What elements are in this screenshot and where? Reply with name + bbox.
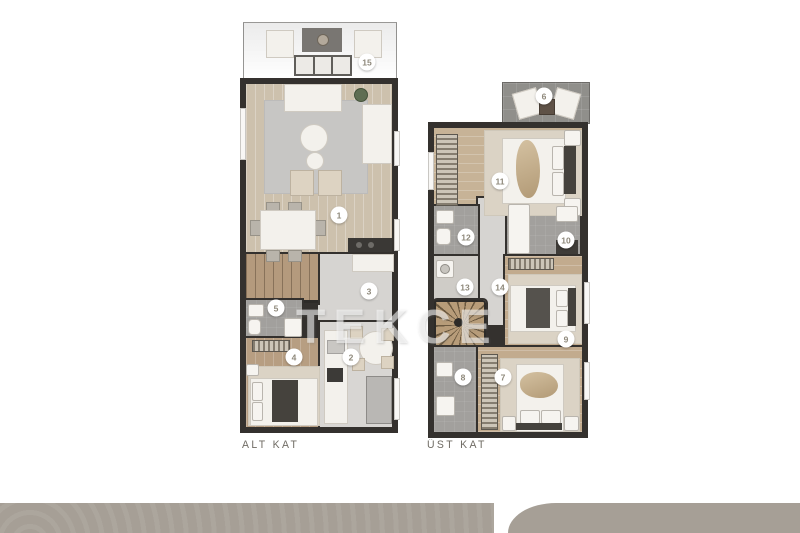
open-wardrobe <box>436 134 458 206</box>
room-marker-13: 13 <box>457 279 474 296</box>
dining-table <box>260 210 316 250</box>
bed-throw <box>272 380 298 422</box>
pillow <box>552 172 564 196</box>
ust-kat-unit <box>428 122 588 438</box>
nightstand <box>564 416 579 431</box>
window <box>428 152 434 190</box>
label-alt-kat: ALT KAT <box>242 439 299 451</box>
pillow <box>252 402 263 421</box>
wardrobe <box>508 258 554 270</box>
dining-chair <box>288 250 302 262</box>
room-marker-14: 14 <box>492 279 509 296</box>
fur-throw <box>516 140 540 198</box>
window <box>240 108 246 160</box>
room-marker-6: 6 <box>536 88 553 105</box>
floorplan-ust-kat <box>428 82 588 438</box>
nightstand <box>564 130 581 146</box>
bathroom-8 <box>434 347 478 432</box>
dining-chair <box>266 250 280 262</box>
window <box>394 131 400 166</box>
chaise-lounge <box>362 104 392 164</box>
terrace-table-decor <box>317 34 329 46</box>
room-marker-8: 8 <box>455 369 472 386</box>
window <box>394 219 400 251</box>
bed-headboard <box>516 423 562 430</box>
toilet <box>248 319 261 335</box>
counter-light <box>352 254 394 272</box>
kitchen-chair <box>381 356 394 369</box>
armchair-1 <box>290 170 314 196</box>
open-wardrobe <box>481 354 498 430</box>
nightstand <box>502 416 516 431</box>
sink <box>436 362 453 377</box>
window <box>584 282 590 324</box>
tekce-watermark: TEKCE <box>296 300 499 355</box>
living-sofa <box>284 84 342 112</box>
bed-headboard <box>564 146 576 194</box>
bed-blanket <box>526 288 550 328</box>
floorplan-canvas: TEKCE 123451567891011121314 ALT KAT ÜST … <box>0 0 800 533</box>
sink <box>248 304 264 317</box>
coffee-table <box>300 124 328 152</box>
pillow <box>556 310 568 327</box>
cooktop-burner <box>368 242 374 248</box>
room-marker-12: 12 <box>458 229 475 246</box>
staircase <box>246 254 318 303</box>
room-marker-9: 9 <box>558 331 575 348</box>
room-marker-11: 11 <box>492 173 509 190</box>
plant <box>354 88 368 102</box>
room-marker-2: 2 <box>343 349 360 366</box>
pillow <box>520 410 540 424</box>
sink <box>436 210 454 224</box>
bottom-bar-right <box>508 503 800 533</box>
alt-kat-unit <box>240 78 398 433</box>
terrace-armchair-left <box>266 30 294 58</box>
window <box>394 378 400 420</box>
room-marker-15: 15 <box>359 54 376 71</box>
room-marker-5: 5 <box>268 300 285 317</box>
room-marker-10: 10 <box>558 232 575 249</box>
armchair-2 <box>318 170 342 196</box>
toilet <box>436 228 451 245</box>
nightstand <box>246 364 259 376</box>
label-ust-kat: ÜST KAT <box>427 439 487 451</box>
sofa-cushion <box>333 57 350 74</box>
room-marker-1: 1 <box>331 207 348 224</box>
bed-headboard <box>568 288 576 326</box>
pillow <box>552 146 564 170</box>
room-marker-3: 3 <box>361 283 378 300</box>
kitchen-stove <box>327 368 343 382</box>
washer-drum <box>440 264 450 274</box>
fridge <box>366 376 392 424</box>
bathtub <box>508 204 530 254</box>
fur-throw <box>520 372 558 398</box>
terrace <box>243 22 397 80</box>
shower <box>436 396 455 416</box>
wardrobe <box>252 340 290 352</box>
room-marker-4: 4 <box>286 349 303 366</box>
side-table <box>306 152 324 170</box>
sofa-cushion <box>296 57 313 74</box>
floorplan-alt-kat <box>240 22 398 433</box>
cooktop-burner <box>356 242 362 248</box>
pillow <box>541 410 561 424</box>
pillow <box>252 382 263 401</box>
window <box>584 362 590 400</box>
bottom-bar-left <box>0 503 494 533</box>
room-marker-7: 7 <box>495 369 512 386</box>
sink <box>556 206 578 222</box>
pillow <box>556 290 568 307</box>
sofa-cushion <box>315 57 332 74</box>
terrace-sofa <box>294 55 352 76</box>
